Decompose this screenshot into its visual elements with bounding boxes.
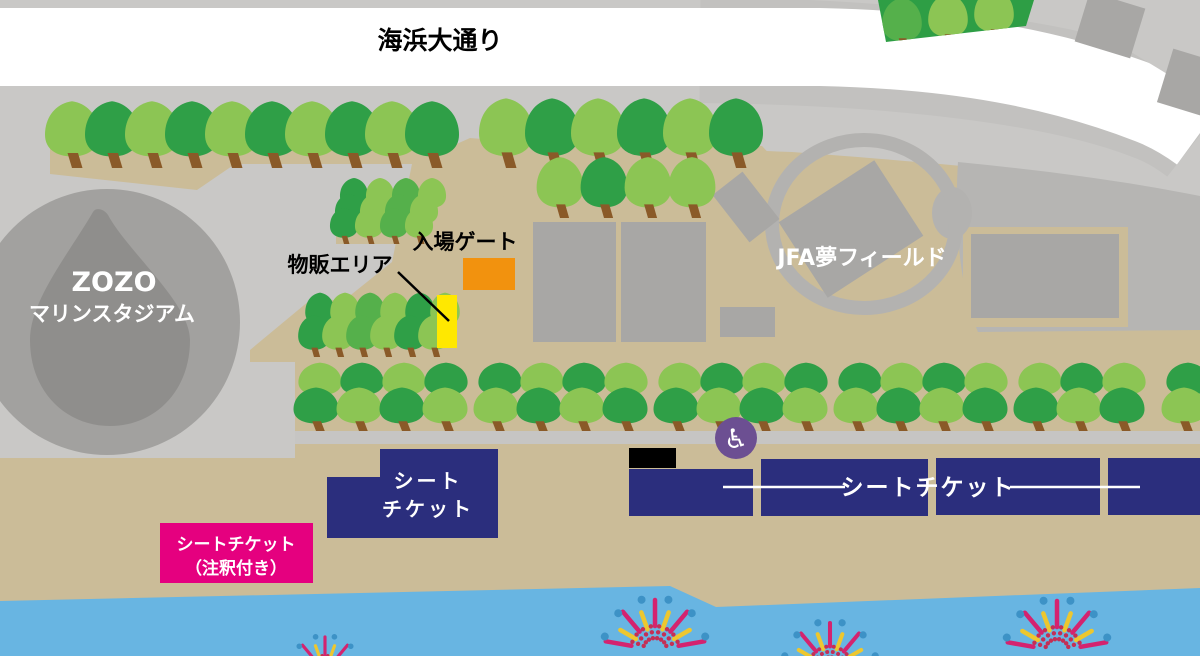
- building-mid-1: [533, 222, 616, 342]
- event-map: ZOZO マリンスタジアム 物販エリア 入場ゲート JFA夢フィールド 海浜大通…: [0, 0, 1200, 656]
- seat-ticket-zone-1: [629, 469, 753, 516]
- wheelchair-icon: ♿: [724, 424, 748, 455]
- entrance-gate-marker: [463, 258, 515, 290]
- building-mid-3: [720, 307, 775, 337]
- jfa-label: JFA夢フィールド: [775, 246, 946, 271]
- seat-ticket-left-line1: シート: [394, 469, 463, 493]
- seat-ticket-right-label: シートチケット: [841, 475, 1016, 501]
- merch-area-marker: [437, 295, 457, 348]
- map-canvas: ZOZO マリンスタジアム 物販エリア 入場ゲート JFA夢フィールド 海浜大通…: [0, 0, 1200, 656]
- merch-area-label: 物販エリア: [288, 253, 393, 277]
- road-label: 海浜大通り: [377, 26, 502, 55]
- seat-ticket-annotated-line2: （注釈付き）: [185, 558, 287, 579]
- building-east: [971, 234, 1119, 318]
- stage-black-marker: [629, 448, 676, 468]
- seat-ticket-annotated-line1: シートチケット: [177, 535, 296, 555]
- zozo-label-line2: マリンスタジアム: [29, 302, 195, 326]
- zozo-label-line1: ZOZO: [71, 267, 156, 298]
- seat-ticket-left-line2: チケット: [382, 497, 474, 521]
- building-mid-2: [621, 222, 706, 342]
- entrance-gate-label: 入場ゲート: [413, 230, 518, 254]
